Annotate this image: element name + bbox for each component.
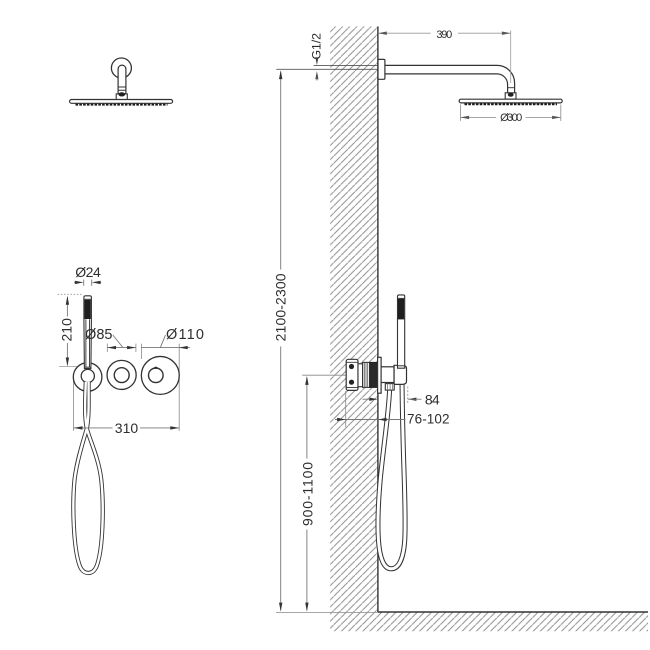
svg-text:G1/2: G1/2 xyxy=(309,33,323,60)
svg-text:2100-2300: 2100-2300 xyxy=(273,273,289,341)
svg-text:76-102: 76-102 xyxy=(407,412,450,427)
svg-text:210: 210 xyxy=(58,318,74,342)
svg-text:84: 84 xyxy=(425,392,440,408)
svg-text:Ø85: Ø85 xyxy=(85,327,113,343)
svg-text:310: 310 xyxy=(115,420,139,436)
svg-text:Ø300: Ø300 xyxy=(500,112,522,124)
svg-text:Ø110: Ø110 xyxy=(166,327,204,343)
svg-text:900-1100: 900-1100 xyxy=(300,462,316,526)
svg-text:390: 390 xyxy=(436,29,452,41)
svg-text:Ø24: Ø24 xyxy=(75,264,101,280)
